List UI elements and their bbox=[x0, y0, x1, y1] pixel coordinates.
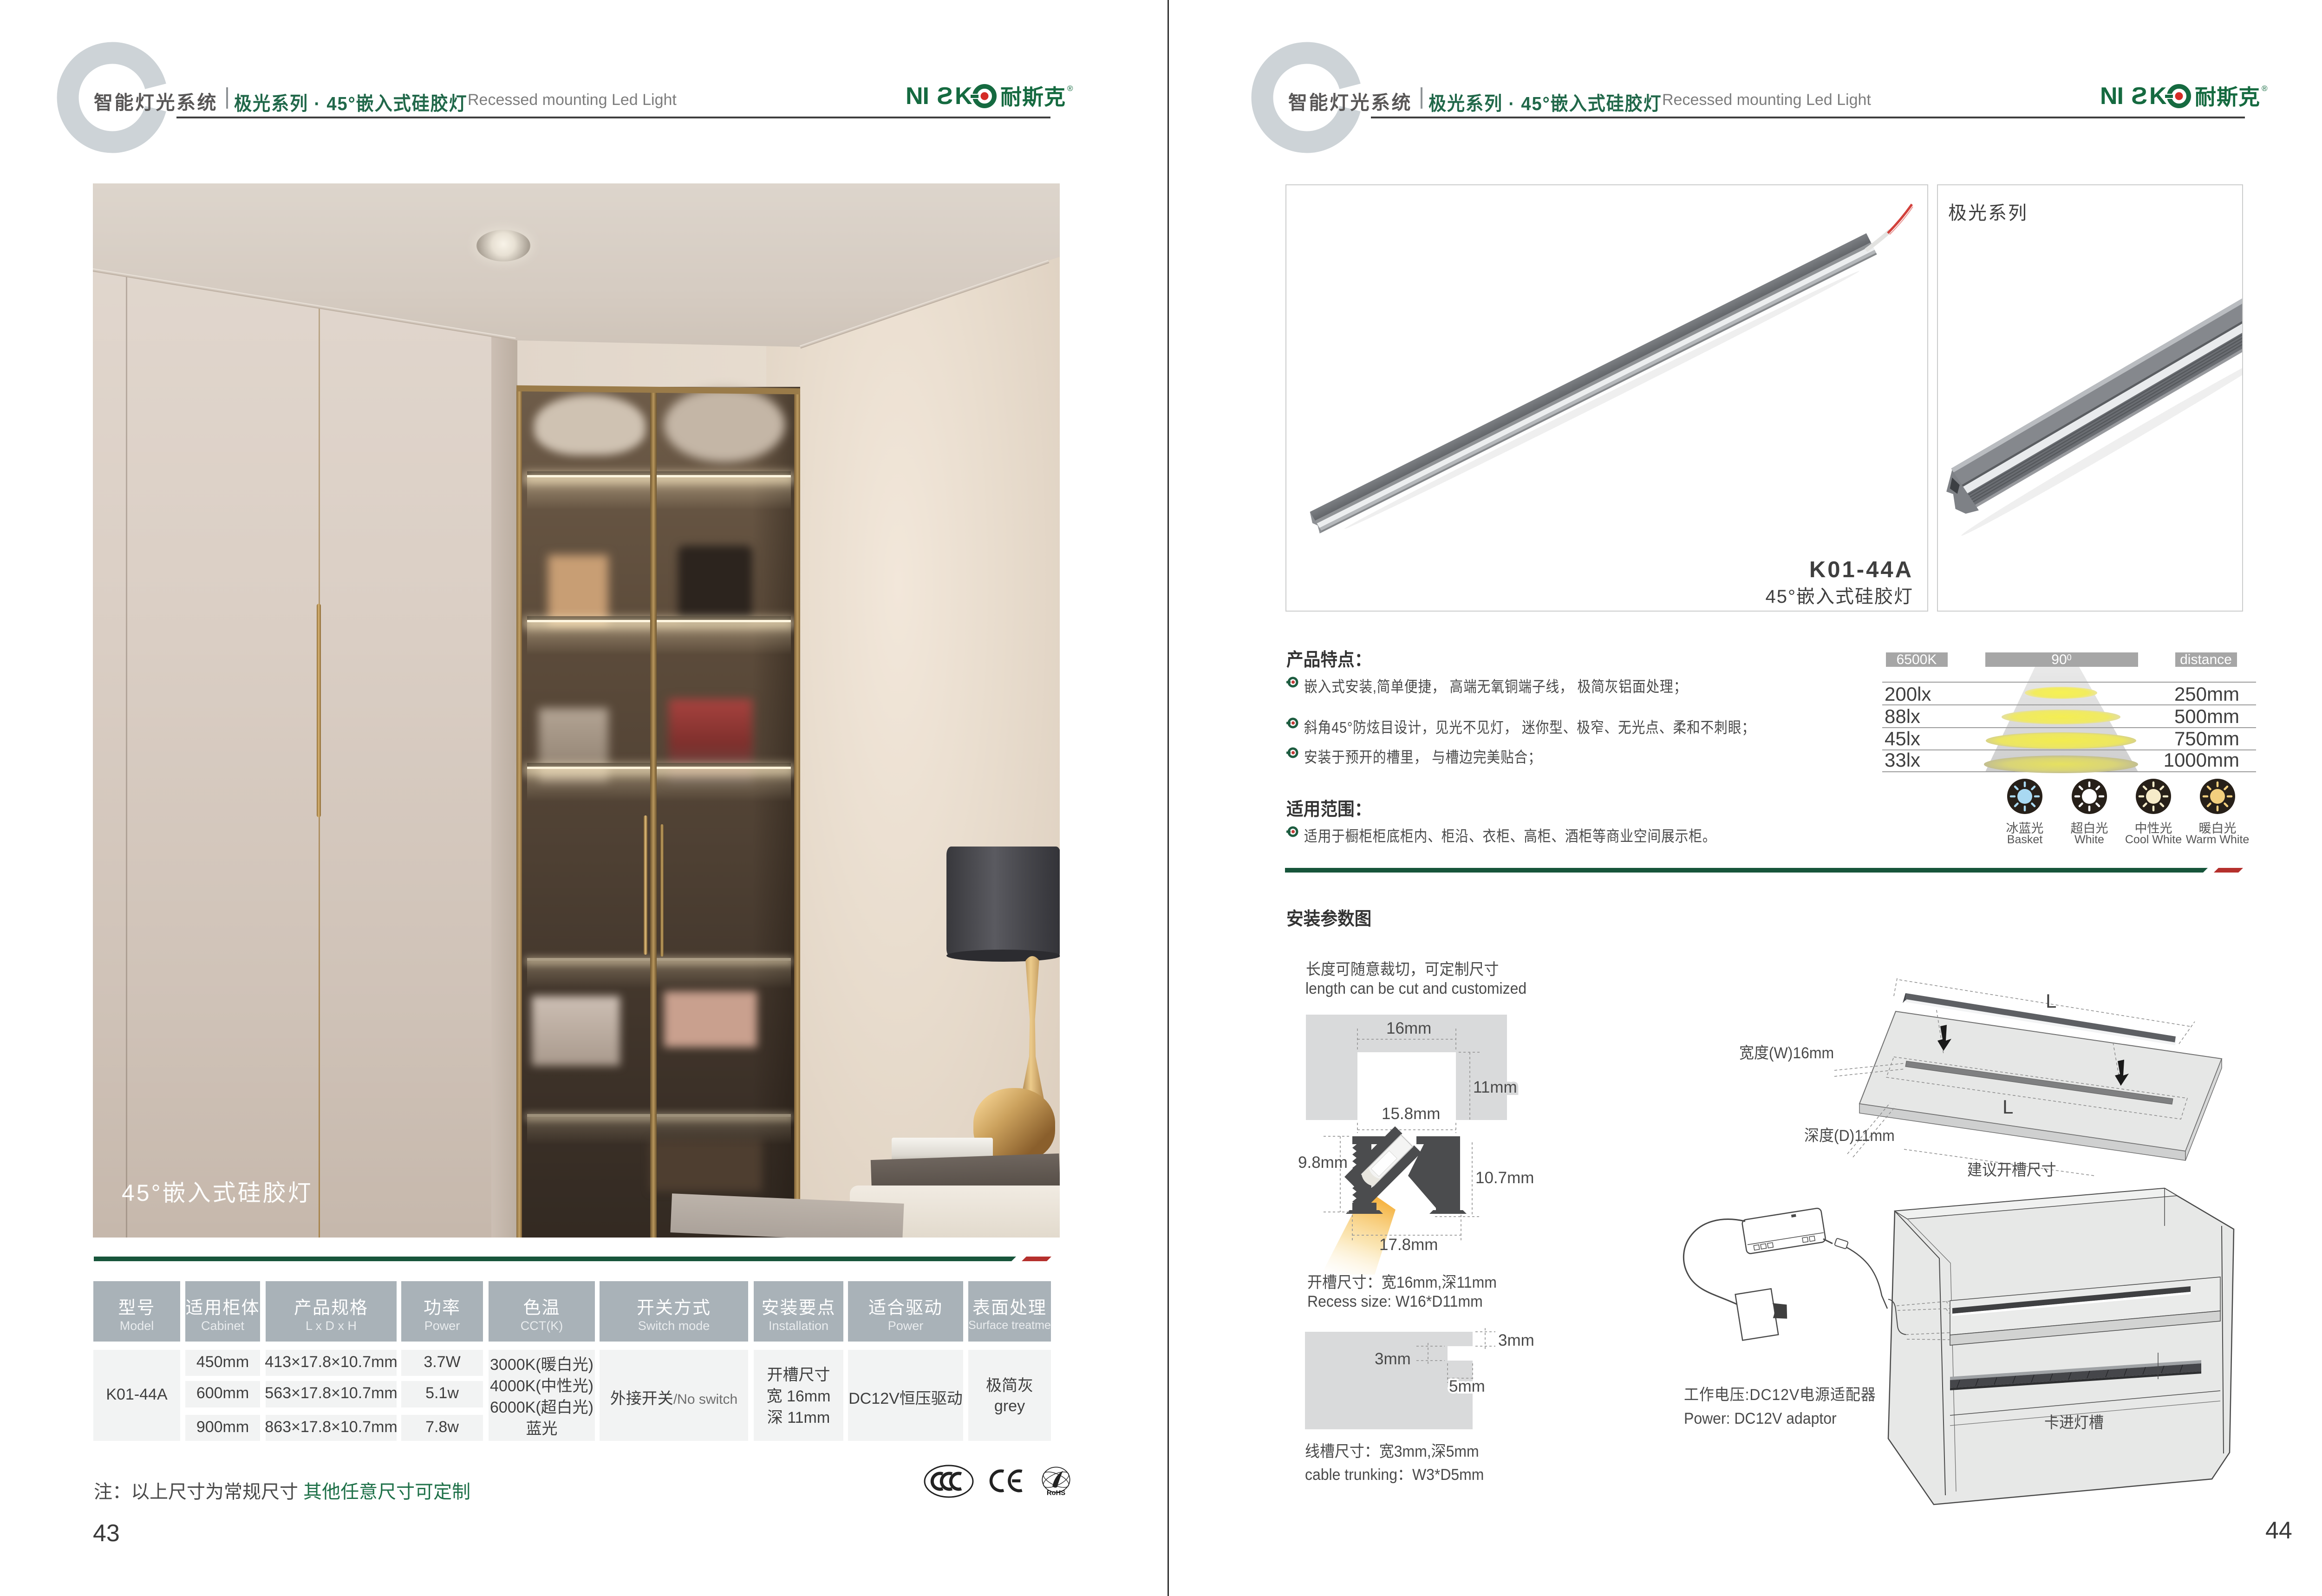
svg-text:10.7mm: 10.7mm bbox=[1475, 1169, 1534, 1187]
svg-text:33lx: 33lx bbox=[1885, 749, 1920, 771]
svg-text:11mm: 11mm bbox=[1473, 1078, 1517, 1096]
svg-text:17.8mm: 17.8mm bbox=[1379, 1236, 1438, 1254]
svg-text:15.8mm: 15.8mm bbox=[1382, 1105, 1440, 1123]
svg-text:®: ® bbox=[2262, 84, 2268, 93]
svg-text:3mm: 3mm bbox=[1375, 1350, 1411, 1368]
svg-text:L: L bbox=[2046, 990, 2056, 1012]
svg-text:耐斯克: 耐斯克 bbox=[1000, 85, 1066, 109]
svg-text:®: ® bbox=[1067, 84, 1073, 93]
svg-text:200lx: 200lx bbox=[1885, 683, 1931, 705]
svg-text:250mm: 250mm bbox=[2174, 683, 2239, 705]
svg-text:NI: NI bbox=[906, 84, 929, 110]
svg-text:16mm: 16mm bbox=[1386, 1019, 1431, 1037]
svg-text:9.8mm: 9.8mm bbox=[1298, 1153, 1348, 1172]
svg-text:S: S bbox=[937, 84, 953, 110]
svg-text:L: L bbox=[2002, 1096, 2013, 1118]
svg-text:K: K bbox=[2149, 84, 2167, 110]
svg-text:1000mm: 1000mm bbox=[2164, 749, 2239, 771]
svg-text:500mm: 500mm bbox=[2174, 705, 2239, 727]
svg-text:distance: distance bbox=[2180, 652, 2232, 667]
svg-text:S: S bbox=[2131, 84, 2147, 110]
svg-text:RoHS: RoHS bbox=[1047, 1490, 1065, 1497]
svg-text:6500K: 6500K bbox=[1897, 652, 1937, 667]
svg-text:5mm: 5mm bbox=[1449, 1377, 1485, 1395]
svg-text:NI: NI bbox=[2100, 84, 2123, 110]
svg-text:750mm: 750mm bbox=[2174, 728, 2239, 749]
svg-text:耐斯克: 耐斯克 bbox=[2195, 85, 2260, 109]
svg-text:88lx: 88lx bbox=[1885, 705, 1920, 727]
svg-text:3mm: 3mm bbox=[1498, 1331, 1534, 1349]
svg-text:K: K bbox=[955, 84, 972, 110]
svg-text:45lx: 45lx bbox=[1885, 728, 1920, 749]
